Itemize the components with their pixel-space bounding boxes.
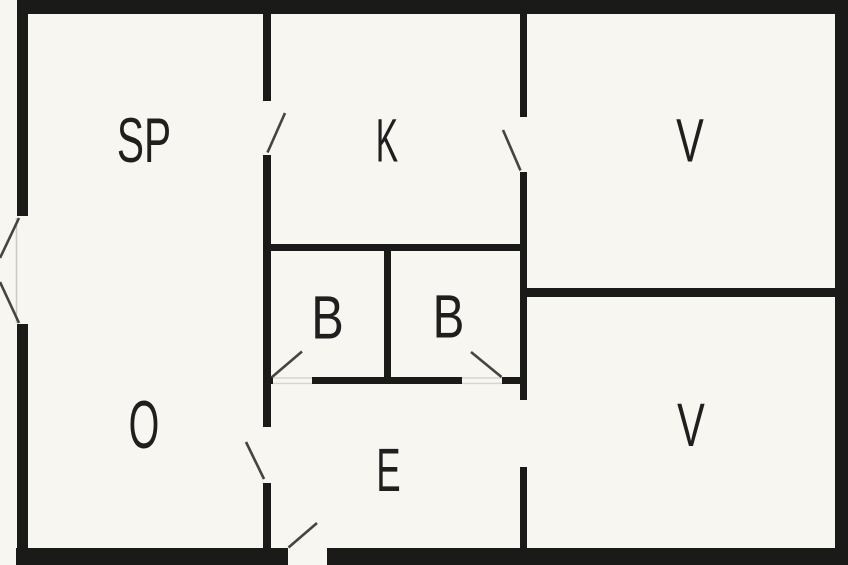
svg-text:K: K (376, 107, 398, 175)
svg-text:O: O (129, 387, 160, 463)
svg-text:B: B (311, 283, 344, 351)
svg-text:SP: SP (117, 106, 171, 176)
svg-text:E: E (376, 435, 400, 504)
svg-text:V: V (676, 108, 704, 176)
svg-text:B: B (433, 282, 465, 351)
svg-text:V: V (677, 392, 705, 460)
